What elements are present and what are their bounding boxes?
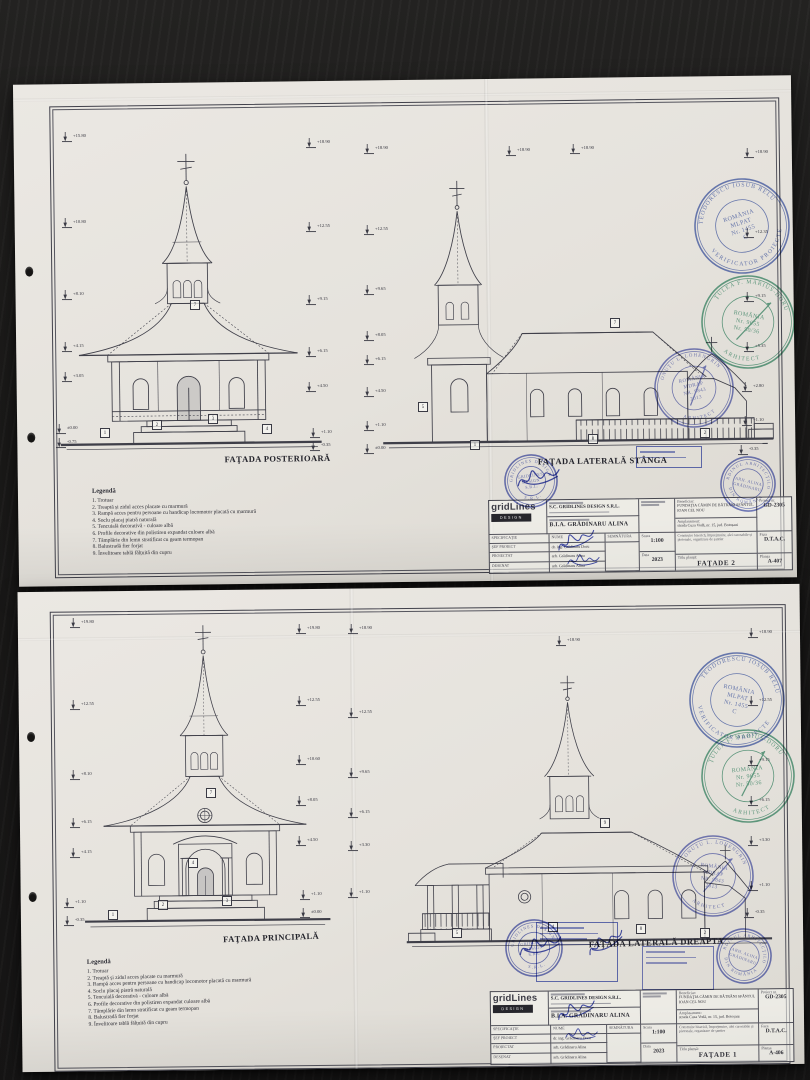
level-marker: +8.05 [364,331,386,342]
arhitect-stamp-tulea: ŢULEA F. MARIUS-DORUARHITECTROMÂNIANr. 9… [692,720,804,832]
level-marker: +18.90 [744,148,768,159]
level-marker: +1.10 [348,888,370,899]
level-marker: +10.80 [62,218,86,229]
level-marker: +9.15 [306,295,328,306]
level-marker: +18.90 [364,144,388,155]
rect-stamp-medium [642,946,714,990]
callout-number: 7 [206,788,216,798]
svg-text:ARHITECT: ARHITECT [731,804,772,819]
level-marker: ±0.00 [364,444,386,455]
callout-number: 3 [222,896,232,906]
callout-number: 9 [600,818,610,828]
level-marker: +4.15 [62,342,84,353]
level-marker: +1.10 [310,428,332,439]
svg-text:ŢULEA F. MARIUS-DORU: ŢULEA F. MARIUS-DORU [713,273,793,313]
callout-number: 8 [588,434,598,444]
level-marker: -0.35 [64,916,85,927]
svg-text:C: C [743,234,749,241]
level-marker: +18.90 [506,146,530,157]
level-marker: +4.15 [70,848,92,859]
level-marker: -0.75 [56,438,77,449]
level-marker: +12.55 [296,696,320,707]
level-marker: +15.80 [62,132,86,143]
level-marker: +18.90 [306,138,330,149]
callout-number: 1 [108,910,118,920]
level-marker: +8.10 [62,290,84,301]
callout-number: 1 [100,428,110,438]
svg-text:2013: 2013 [705,883,718,891]
level-marker: +8.05 [296,796,318,807]
level-marker: +3.05 [62,372,84,383]
level-marker: -0.35 [310,441,331,452]
svg-text:ŢULEA F. MARIUS-DORU: ŢULEA F. MARIUS-DORU [706,730,785,765]
level-marker: +18.90 [348,624,372,635]
callout-number: 1 [470,440,480,450]
callout-number: 2 [700,928,710,938]
level-marker: +1.10 [300,890,322,901]
level-marker: +19.80 [70,618,94,629]
level-marker: +4.50 [364,387,386,398]
level-marker: ±0.00 [56,424,78,435]
arhitect-stamp-onutu: ONUŢU L. LOHENGRINARHITECTROMÂNIAMDRAPNR… [642,336,746,440]
callout-number: 7 [610,318,620,328]
callout-number: 3 [208,414,218,424]
callout-number: 5 [452,928,462,938]
level-marker: +1.10 [364,421,386,432]
arhitect-stamp-onutu: ONUŢU L. LOHENGRINARHITECTROMÂNIAMDRAPNR… [662,825,764,927]
level-marker: +4.50 [296,836,318,847]
level-marker: +18.90 [556,636,580,647]
photo-background: FAŢADA POSTERIOARĂ FAŢADA LATERALĂ STÂNG… [0,0,810,1080]
level-marker: +18.90 [748,628,772,639]
level-marker: +9.65 [348,768,370,779]
level-marker: +12.55 [348,708,372,719]
level-marker: +4.50 [306,382,328,393]
callout-number: 4 [262,424,272,434]
svg-text:ARHITECT: ARHITECT [690,898,727,912]
oar-stamp: ORDINUL ARHITECŢILORDIN ROMÂNIAARH. ALIN… [703,915,785,997]
annotation-overlay: +15.80+10.80+8.10+4.15+3.05±0.00-0.75+18… [0,0,810,1080]
level-marker: ±0.00 [300,908,322,919]
level-marker: +6.15 [364,355,386,366]
level-marker: +12.55 [306,222,330,233]
callout-number: 8 [636,924,646,934]
level-marker: +6.15 [70,818,92,829]
level-marker: +1.10 [64,898,86,909]
handwritten-signature [515,463,566,500]
level-marker: +6.15 [348,808,370,819]
svg-text:C: C [732,709,738,716]
level-marker: +2.80 [742,382,764,393]
callout-number: 7 [190,300,200,310]
level-marker: +3.30 [348,841,370,852]
level-marker: +18.90 [570,144,594,155]
rect-stamp-small [636,446,702,468]
level-marker: +10.60 [296,755,320,766]
callout-number: 4 [188,858,198,868]
level-marker: +8.10 [70,770,92,781]
level-marker: +6.15 [306,347,328,358]
handwritten-signature [565,549,603,577]
level-marker: +19.80 [296,624,320,635]
handwritten-signature [563,1023,601,1052]
level-marker: +9.65 [364,285,386,296]
handwritten-signature [516,930,568,969]
callout-number: 5 [418,402,428,412]
level-marker: +12.55 [364,225,388,236]
level-marker: +12.55 [70,700,94,711]
oar-stamp: ORDINUL ARHITECŢILORDIN ROMÂNIAARH. ALIN… [709,445,787,523]
callout-number: 2 [152,420,162,430]
callout-number: 2 [158,900,168,910]
